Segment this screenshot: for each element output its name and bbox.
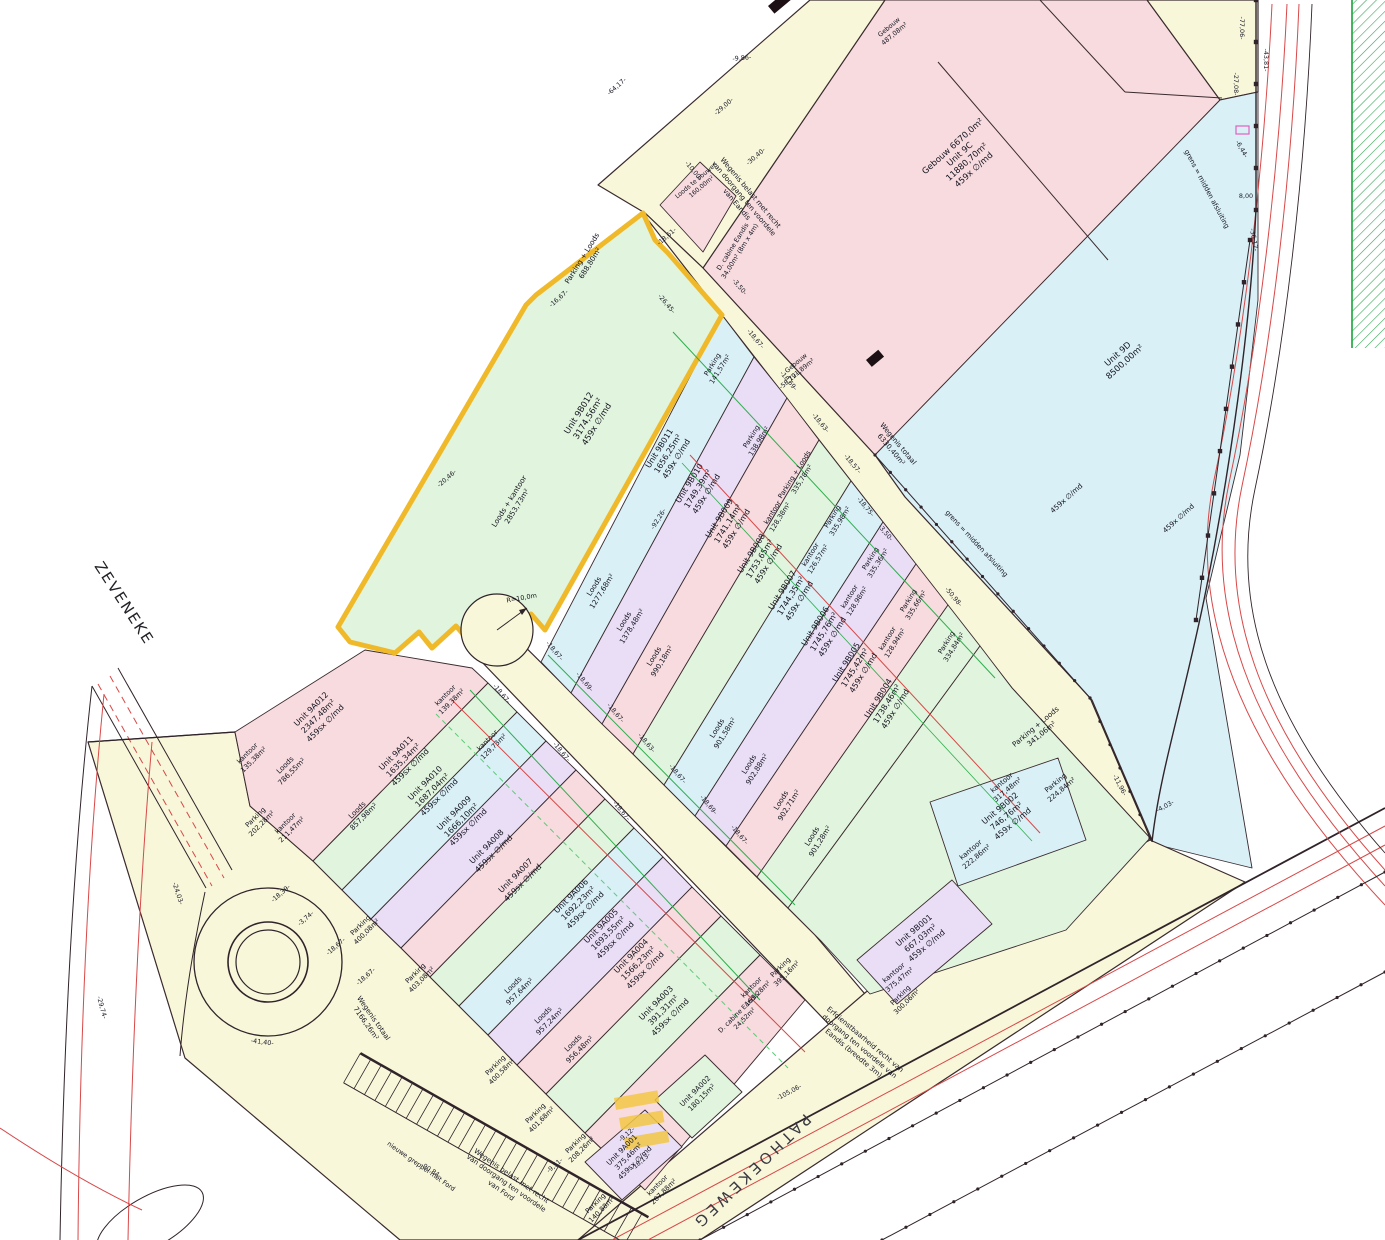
dim-1--9,86--text: -9,86-: [732, 53, 751, 63]
site-plan-svg: Gebouw 6670,0m²Unit 9C11880,70m²459x ∅/m…: [0, 0, 1385, 1240]
dim-0--64,17--text: -64,17-: [605, 76, 628, 97]
fence-east-mid-marker: [1212, 491, 1216, 495]
fence-pathoekeweg-1-marker: [1242, 947, 1245, 950]
dim-28--29,74-: -29,74-: [95, 995, 109, 1019]
fence-pathoekeweg-2-marker: [1216, 1060, 1219, 1063]
fence-pathoekeweg-1-marker: [864, 1150, 867, 1153]
fence-9d-road-marker: [950, 540, 953, 543]
fence-pathoekeweg-1-marker: [1289, 921, 1292, 924]
fence-pathoekeweg-2-marker: [1048, 1149, 1051, 1152]
fence-pathoekeweg-1-marker: [1194, 972, 1197, 975]
fence-pathoekeweg-1-marker: [840, 1162, 843, 1165]
fence-pathoekeweg-1-marker: [935, 1112, 938, 1115]
fence-east-top-marker: [1254, 40, 1258, 44]
hatch-green-strip: [1352, 0, 1385, 348]
fence-pathoekeweg-2-marker: [928, 1213, 931, 1216]
dim-35--43,81--text: -43,81-: [1262, 49, 1270, 72]
fence-9d-road-marker: [935, 523, 938, 526]
fence-east-top-marker: [1254, 166, 1258, 170]
fence-east-mid-marker: [1230, 364, 1234, 368]
fence-pathoekeweg-1-marker: [1124, 1010, 1127, 1013]
dim-0--64,17-: -64,17-: [605, 76, 628, 97]
fence-east-mid-marker: [1236, 322, 1240, 326]
fence-9d-road-marker: [1073, 679, 1076, 682]
fence-pathoekeweg-1-marker: [911, 1124, 914, 1127]
fence-east-mid-marker: [1206, 533, 1210, 537]
fence-east-mid-marker: [1224, 407, 1228, 411]
roundabout-ring-1: [228, 922, 308, 1002]
corner-red-curve: [0, 1128, 142, 1210]
fence-9d-road-marker: [996, 592, 999, 595]
fence-pathoekeweg-1-marker: [746, 1213, 749, 1216]
dim-37-8,00-text: 8,00: [1239, 192, 1253, 200]
fence-pathoekeweg-2-marker: [1288, 1021, 1291, 1024]
fence-pathoekeweg-2-marker: [904, 1226, 907, 1229]
fence-pathoekeweg-1-marker: [1053, 1048, 1056, 1051]
fence-road-bend-marker: [1138, 813, 1141, 816]
dim-28--29,74--text: -29,74-: [95, 995, 109, 1019]
building-top: [768, 0, 791, 14]
fence-east-mid-marker: [1194, 618, 1198, 622]
fence-pathoekeweg-2-marker: [1144, 1098, 1147, 1101]
fence-east-mid-marker: [1200, 576, 1204, 580]
fence-pathoekeweg-2-marker: [1192, 1072, 1195, 1075]
dim-34--77,06-: -77,06-: [1238, 17, 1246, 40]
fence-east-top-marker: [1254, 0, 1258, 2]
fence-pathoekeweg-1-marker: [817, 1175, 820, 1178]
fence-pathoekeweg-1-marker: [887, 1137, 890, 1140]
fence-pathoekeweg-2-marker: [1000, 1175, 1003, 1178]
fence-pathoekeweg-1-marker: [722, 1226, 725, 1229]
fence-9d-road-marker: [1012, 610, 1015, 613]
fence-9d-road-marker: [873, 453, 876, 456]
fence-pathoekeweg-1-marker: [1100, 1023, 1103, 1026]
fence-pathoekeweg-1-marker: [793, 1188, 796, 1191]
fence-9d-road-marker: [1027, 627, 1030, 630]
fence-east-top-marker: [1254, 208, 1258, 212]
fence-east-mid-marker: [1242, 280, 1246, 284]
fence-pathoekeweg-2-marker: [1312, 1009, 1315, 1012]
fence-pathoekeweg-2-marker: [1096, 1124, 1099, 1127]
fence-pathoekeweg-1-marker: [1171, 985, 1174, 988]
fence-pathoekeweg-1-marker: [1313, 908, 1316, 911]
fence-pathoekeweg-1-marker: [1147, 997, 1150, 1000]
fence-pathoekeweg-1-marker: [769, 1200, 772, 1203]
fence-pathoekeweg-2-marker: [1359, 983, 1362, 986]
fence-road-bend-marker: [1118, 766, 1121, 769]
fence-pathoekeweg-2-marker: [1024, 1162, 1027, 1165]
dim-1--9,86-: -9,86-: [732, 53, 751, 63]
fence-road-bend-marker: [1148, 836, 1151, 839]
fence-pathoekeweg-1-marker: [1076, 1035, 1079, 1038]
fence-pathoekeweg-1-marker: [958, 1099, 961, 1102]
dim-34--77,06--text: -77,06-: [1238, 17, 1246, 40]
fence-pathoekeweg-1-marker: [1336, 896, 1339, 899]
fence-road-bend-marker: [1098, 720, 1101, 723]
fence-pathoekeweg-1-marker: [982, 1086, 985, 1089]
fence-pathoekeweg-2-marker: [1240, 1047, 1243, 1050]
fence-pathoekeweg-2-marker: [1168, 1085, 1171, 1088]
fence-9d-road-marker: [966, 558, 969, 561]
fence-pathoekeweg-1-marker: [1005, 1073, 1008, 1076]
fence-pathoekeweg-2-marker: [1120, 1111, 1123, 1114]
site-plan-page: Gebouw 6670,0m²Unit 9C11880,70m²459x ∅/m…: [0, 0, 1385, 1240]
fence-9d-road-marker: [1042, 644, 1045, 647]
fence-pathoekeweg-2-marker: [952, 1200, 955, 1203]
fence-east-top-marker: [1254, 82, 1258, 86]
fence-pathoekeweg-1-marker: [1029, 1061, 1032, 1064]
fence-pathoekeweg-2-marker: [1335, 996, 1338, 999]
street-zeveneke-text: ZEVENEKE: [91, 558, 158, 648]
fence-pathoekeweg-2-marker: [1264, 1034, 1267, 1037]
fence-road-bend-marker: [1088, 696, 1091, 699]
fence-pathoekeweg-1-marker: [1360, 883, 1363, 886]
fence-9d-road-marker: [904, 488, 907, 491]
fence-east-top-marker: [1254, 124, 1258, 128]
fence-9d-road-marker: [889, 471, 892, 474]
dim-36--27,08-: -27,08-: [1232, 73, 1240, 96]
fence-9d-road-marker: [1058, 662, 1061, 665]
fence-pathoekeweg-2-marker: [1072, 1136, 1075, 1139]
corner-island: [86, 1170, 215, 1240]
zeveneke-curve-black: [60, 686, 92, 1240]
fence-9d-road-marker: [919, 505, 922, 508]
dim-36--27,08--text: -27,08-: [1232, 73, 1240, 96]
fence-9d-road-marker: [981, 575, 984, 578]
fence-pathoekeweg-1-marker: [1265, 934, 1268, 937]
dim-37-8,00: 8,00: [1239, 192, 1253, 200]
fence-pathoekeweg-1-marker: [1218, 959, 1221, 962]
dim-35--43,81-: -43,81-: [1262, 49, 1270, 72]
fence-road-bend-marker: [1108, 743, 1111, 746]
street-zeveneke: ZEVENEKE: [91, 558, 158, 648]
fence-east-mid-marker: [1218, 449, 1222, 453]
fence-pathoekeweg-2-marker: [976, 1187, 979, 1190]
